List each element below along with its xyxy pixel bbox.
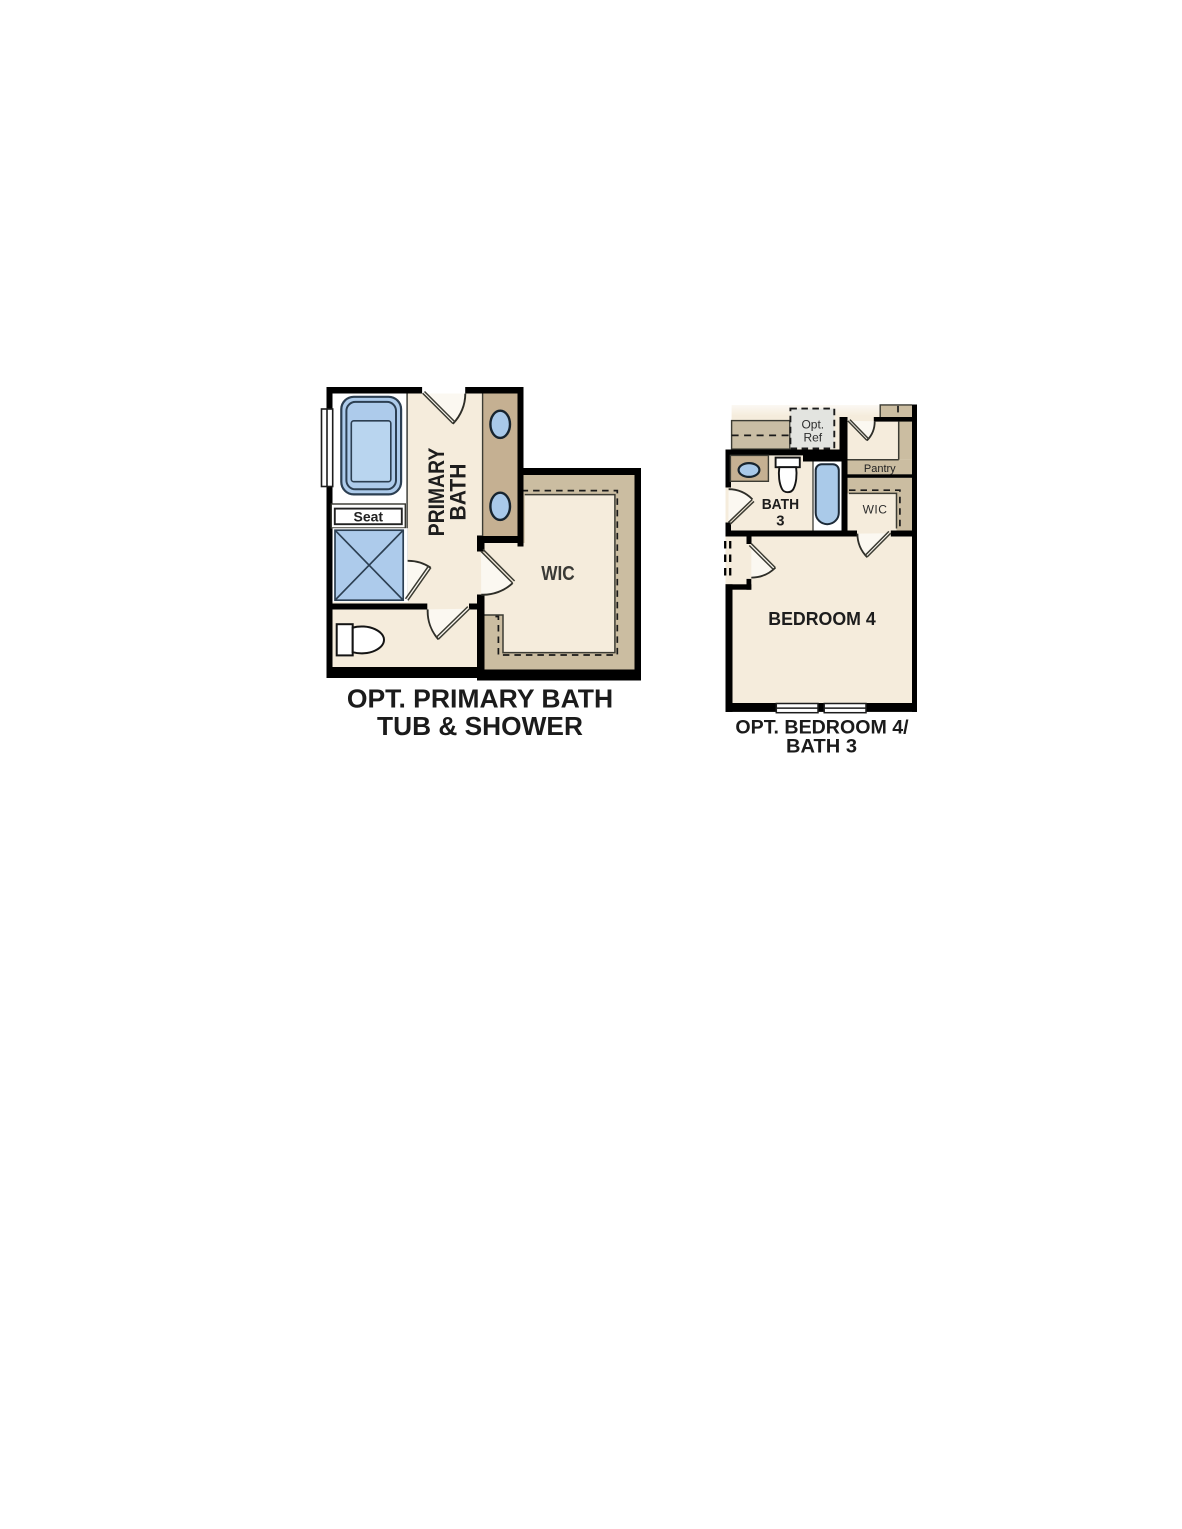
svg-text:Seat: Seat	[354, 509, 384, 525]
svg-text:BEDROOM 4: BEDROOM 4	[768, 608, 876, 629]
svg-text:3: 3	[776, 514, 784, 530]
svg-text:BATH: BATH	[445, 464, 470, 521]
svg-text:OPT. PRIMARY BATH: OPT. PRIMARY BATH	[347, 684, 613, 714]
svg-text:BATH 3: BATH 3	[786, 736, 857, 758]
svg-text:BATH: BATH	[762, 497, 799, 513]
svg-text:WIC: WIC	[863, 503, 888, 517]
svg-text:Ref: Ref	[803, 430, 822, 444]
svg-text:WIC: WIC	[541, 563, 575, 585]
svg-text:TUB & SHOWER: TUB & SHOWER	[377, 711, 583, 741]
svg-text:Pantry: Pantry	[864, 463, 896, 475]
